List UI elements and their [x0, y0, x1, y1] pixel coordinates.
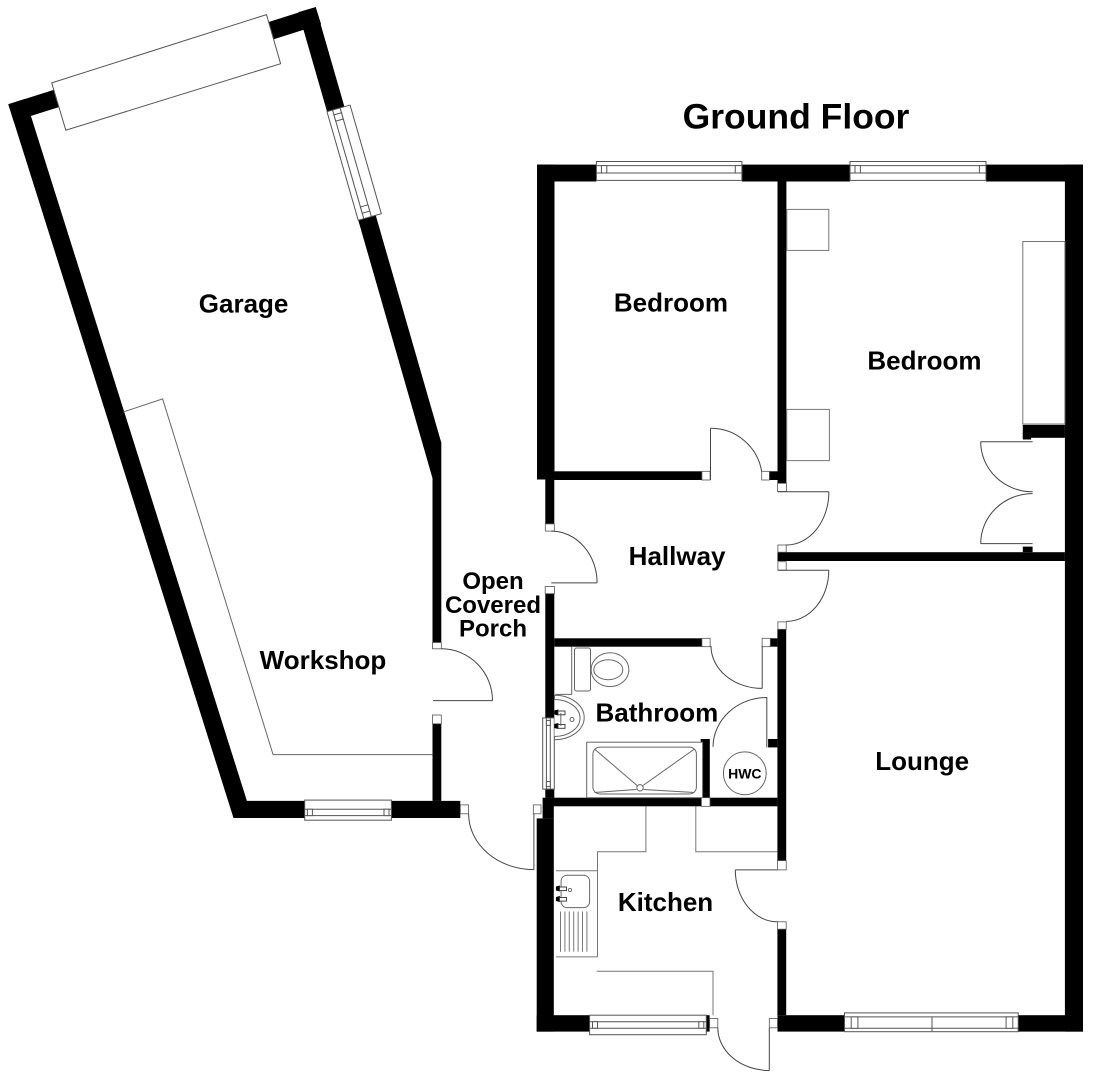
- svg-text:Kitchen: Kitchen: [618, 887, 713, 917]
- svg-text:Ground Floor: Ground Floor: [683, 97, 910, 137]
- svg-text:Garage: Garage: [199, 289, 289, 319]
- svg-text:Bedroom: Bedroom: [614, 288, 728, 318]
- svg-text:Workshop: Workshop: [260, 645, 387, 675]
- svg-text:HWC: HWC: [728, 765, 761, 781]
- svg-text:Porch: Porch: [459, 616, 527, 643]
- svg-text:Open: Open: [462, 568, 523, 595]
- svg-text:Bedroom: Bedroom: [867, 346, 981, 376]
- svg-text:Lounge: Lounge: [875, 746, 969, 776]
- svg-text:Bathroom: Bathroom: [596, 698, 719, 728]
- svg-text:Hallway: Hallway: [629, 541, 726, 571]
